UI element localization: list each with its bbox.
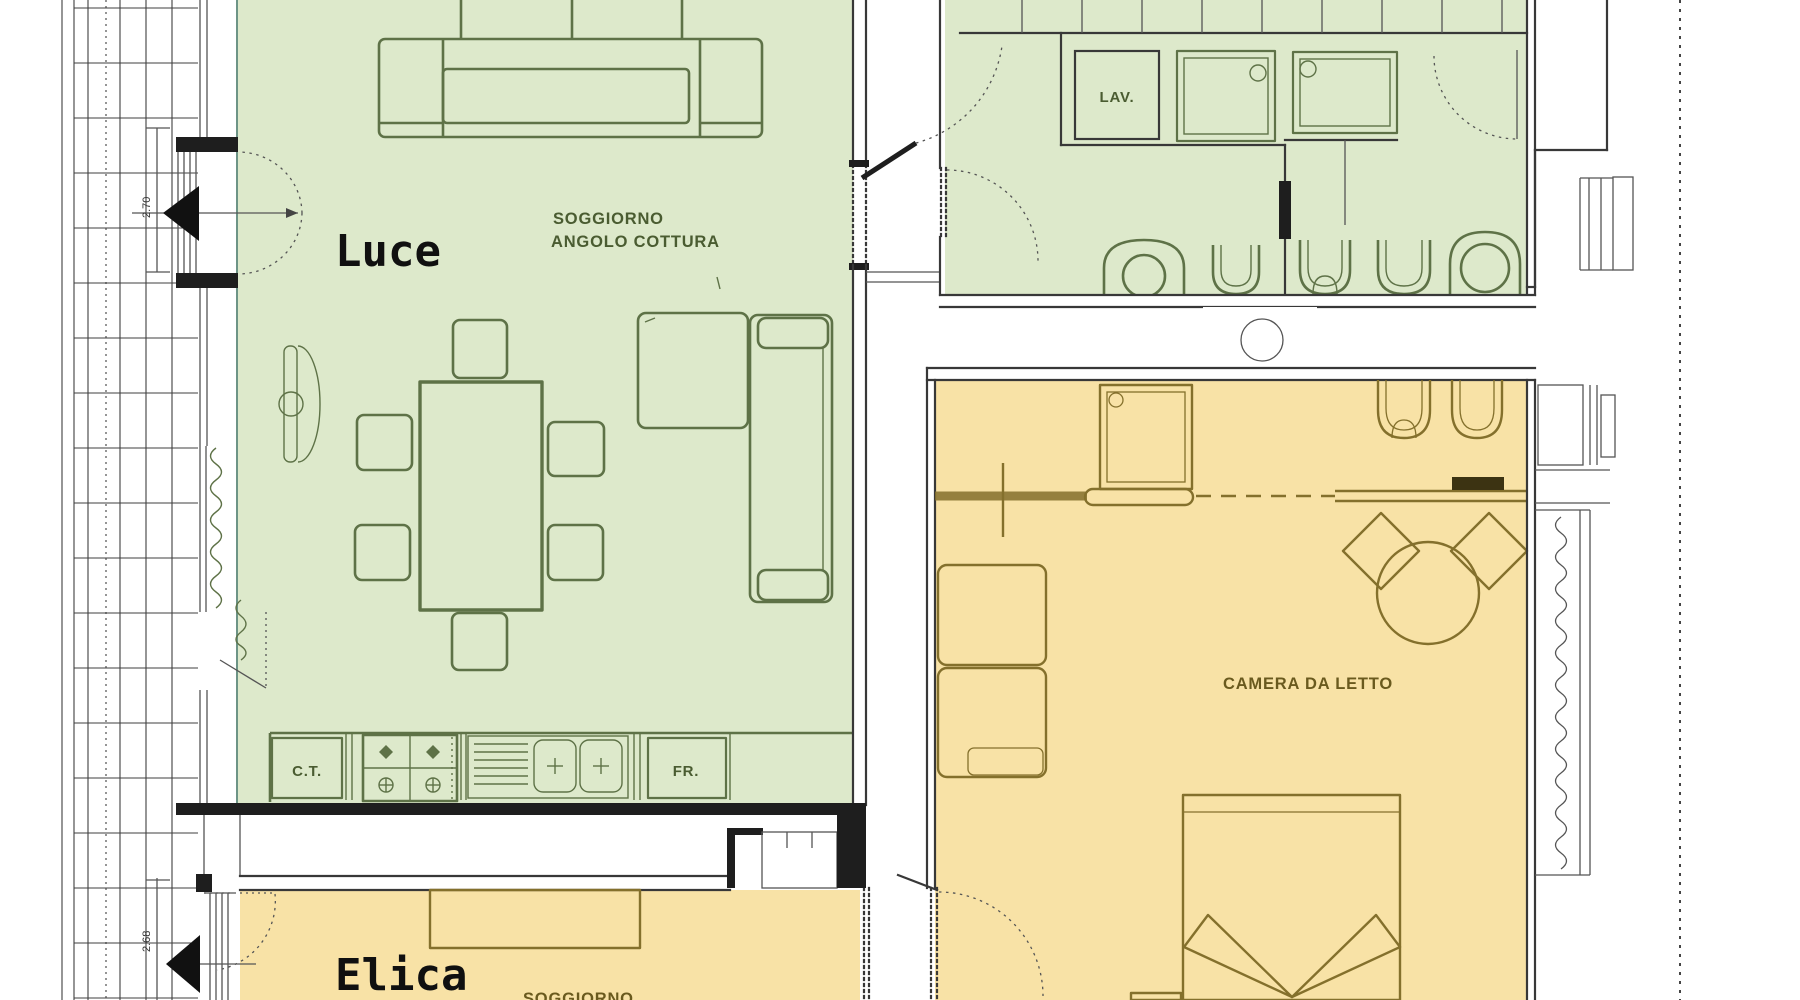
wall-pier xyxy=(196,874,212,892)
living-room-south-wall xyxy=(176,803,866,815)
living-room-label-1: SOGGIORNO xyxy=(553,210,664,228)
living-room-label-2: ANGOLO COTTURA xyxy=(551,233,720,251)
floor-plan-svg: 2.70 2.68 xyxy=(0,0,1800,1000)
elica-balcony-door xyxy=(204,893,234,1000)
dimension-bottom: 2.68 xyxy=(141,878,256,1000)
wall-pier xyxy=(727,828,735,888)
wall-chamfer xyxy=(898,875,937,890)
bedroom-label: CAMERA DA LETTO xyxy=(1223,675,1393,693)
boiler-label: C.T. xyxy=(292,763,322,780)
radiator-squiggle xyxy=(1556,517,1567,869)
apartment-name-elica: Elica xyxy=(335,950,467,1000)
wall-pier xyxy=(176,273,238,288)
living-room-floor xyxy=(237,0,853,805)
dimension-value-top: 2.70 xyxy=(141,197,153,218)
window-radiator-right xyxy=(1535,510,1590,875)
fridge-label: FR. xyxy=(673,763,700,780)
floor-plan: 2.70 2.68 xyxy=(0,0,1800,1000)
wall-pier xyxy=(727,828,763,835)
washbasin-niche xyxy=(1203,307,1317,372)
laundry-label: LAV. xyxy=(1100,89,1135,106)
dark-bar xyxy=(1452,477,1504,490)
door-swing-flag xyxy=(163,186,199,241)
bathroom-floor xyxy=(945,0,1527,295)
apartment-name-luce: Luce xyxy=(335,226,441,277)
dark-wall-pier xyxy=(1279,181,1291,239)
window-niche xyxy=(762,832,837,888)
door-swing-flag xyxy=(166,935,200,993)
elica-living-floor xyxy=(240,890,860,1000)
window-upper-right xyxy=(1580,177,1633,270)
right-exterior xyxy=(1527,0,1680,1000)
window-bedroom-upper xyxy=(1538,385,1615,465)
dimension-value-bottom: 2.68 xyxy=(141,931,153,952)
wall-pier xyxy=(176,137,238,152)
wall-pier xyxy=(837,815,866,888)
radiator-squiggle xyxy=(211,448,222,608)
elica-living-label: SOGGIORNO xyxy=(523,990,634,1000)
window-radiator xyxy=(200,446,222,612)
